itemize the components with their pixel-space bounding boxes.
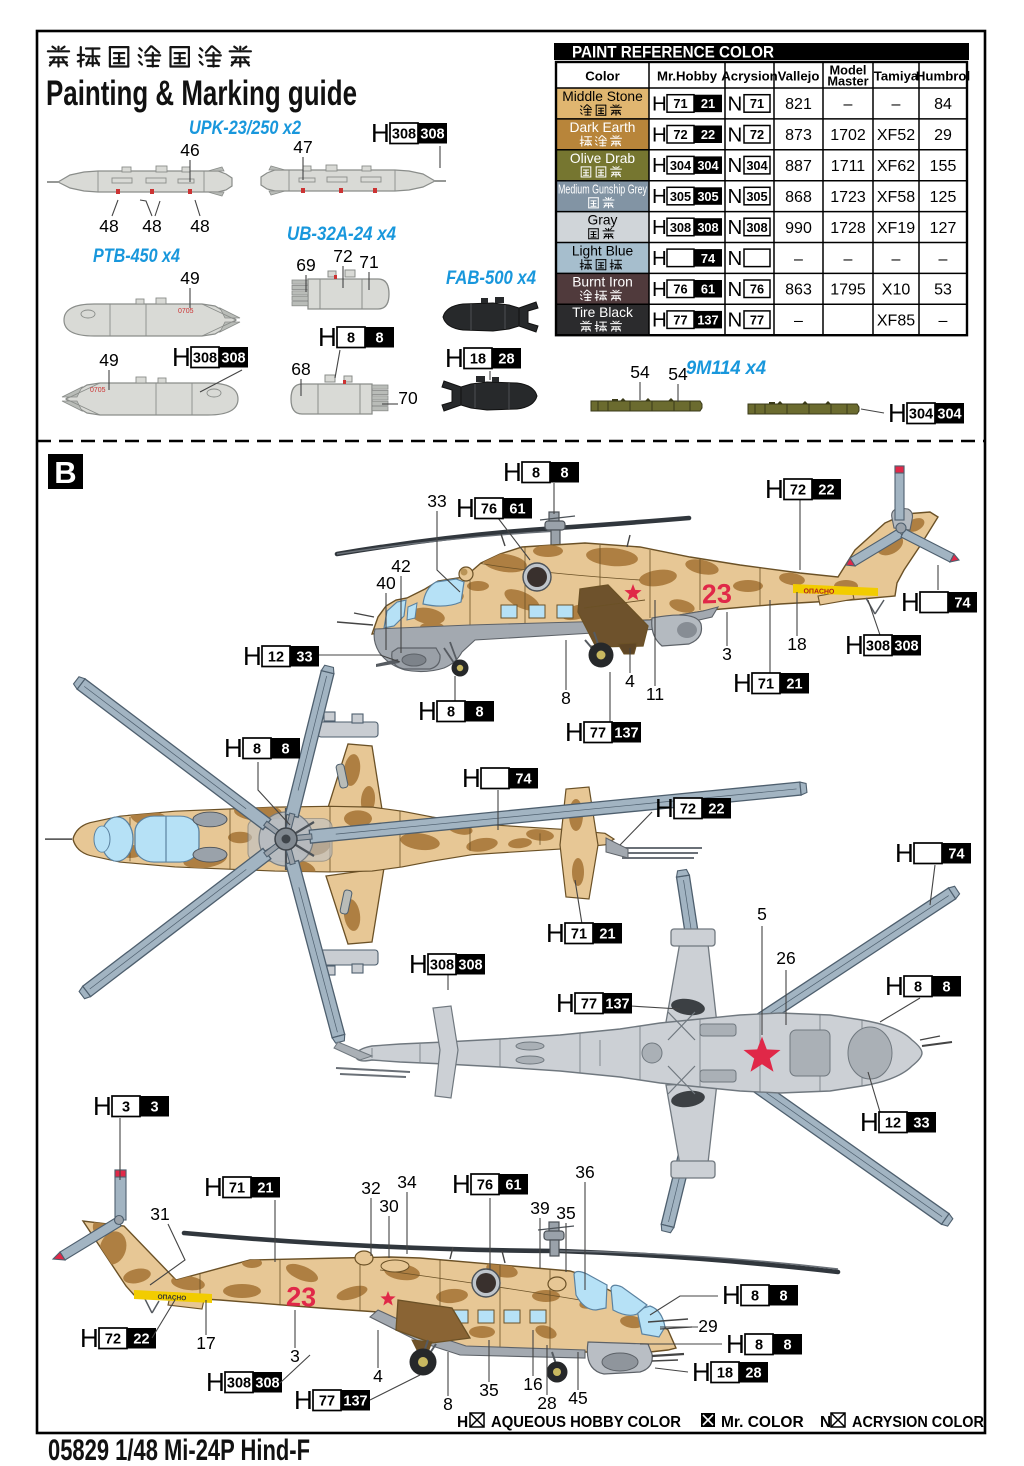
svg-text:308: 308 bbox=[866, 639, 890, 655]
svg-text:H: H bbox=[895, 838, 914, 868]
svg-text:8: 8 bbox=[375, 331, 383, 347]
svg-text:22: 22 bbox=[818, 483, 834, 499]
svg-text:71: 71 bbox=[673, 96, 687, 111]
svg-text:12: 12 bbox=[268, 650, 284, 666]
svg-text:8: 8 bbox=[443, 1394, 453, 1414]
svg-text:18: 18 bbox=[717, 1366, 733, 1382]
svg-text:868: 868 bbox=[785, 189, 812, 206]
svg-text:23: 23 bbox=[701, 578, 732, 609]
svg-text:8: 8 bbox=[253, 742, 261, 758]
svg-text:H: H bbox=[224, 733, 243, 763]
svg-text:22: 22 bbox=[701, 127, 715, 142]
svg-text:125: 125 bbox=[930, 189, 957, 206]
svg-text:305: 305 bbox=[697, 189, 718, 204]
svg-text:Mr.Hobby: Mr.Hobby bbox=[657, 69, 718, 84]
svg-text:H: H bbox=[172, 342, 191, 372]
svg-text:Mr. COLOR: Mr. COLOR bbox=[721, 1414, 804, 1431]
svg-text:1702: 1702 bbox=[830, 127, 866, 144]
svg-text:H: H bbox=[888, 398, 907, 428]
svg-text:71: 71 bbox=[229, 1181, 245, 1197]
svg-text:137: 137 bbox=[697, 313, 718, 328]
svg-text:H: H bbox=[462, 763, 481, 793]
svg-text:16: 16 bbox=[523, 1374, 542, 1394]
svg-text:48: 48 bbox=[142, 216, 161, 236]
svg-text:30: 30 bbox=[379, 1196, 399, 1216]
svg-text:–: – bbox=[939, 251, 948, 268]
svg-text:71: 71 bbox=[571, 927, 587, 943]
svg-text:53: 53 bbox=[934, 282, 952, 299]
svg-text:305: 305 bbox=[670, 189, 691, 204]
svg-text:N: N bbox=[728, 123, 743, 146]
svg-text:H: H bbox=[318, 322, 337, 352]
svg-text:UB-32A-24 x4: UB-32A-24 x4 bbox=[287, 224, 396, 245]
svg-text:28: 28 bbox=[537, 1393, 556, 1413]
svg-text:H: H bbox=[722, 1280, 741, 1310]
svg-text:22: 22 bbox=[708, 802, 724, 818]
svg-text:H: H bbox=[503, 457, 522, 487]
svg-text:9M114 x4: 9M114 x4 bbox=[686, 358, 766, 379]
svg-text:0705: 0705 bbox=[178, 308, 194, 315]
svg-text:74: 74 bbox=[954, 596, 970, 612]
svg-text:Acrysion: Acrysion bbox=[721, 69, 777, 84]
svg-text:36: 36 bbox=[575, 1162, 594, 1182]
svg-text:304: 304 bbox=[746, 158, 768, 173]
svg-text:4: 4 bbox=[373, 1366, 383, 1386]
svg-text:N: N bbox=[728, 278, 743, 301]
svg-text:308: 308 bbox=[430, 958, 454, 974]
svg-text:H: H bbox=[409, 949, 428, 979]
svg-text:887: 887 bbox=[785, 158, 812, 175]
svg-text:3: 3 bbox=[150, 1100, 158, 1116]
svg-text:61: 61 bbox=[701, 282, 715, 297]
svg-text:17: 17 bbox=[196, 1333, 215, 1353]
svg-text:H: H bbox=[901, 587, 920, 617]
svg-text:XF85: XF85 bbox=[877, 313, 915, 330]
svg-text:Color: Color bbox=[585, 69, 619, 84]
svg-text:8: 8 bbox=[281, 742, 289, 758]
svg-text:H: H bbox=[371, 118, 390, 148]
svg-text:8: 8 bbox=[779, 1289, 787, 1305]
svg-text:8: 8 bbox=[475, 705, 483, 721]
svg-text:72: 72 bbox=[333, 246, 352, 266]
svg-text:–: – bbox=[794, 251, 803, 268]
svg-text:18: 18 bbox=[787, 634, 806, 654]
svg-text:05829 1/48 Mi-24P Hind-F: 05829 1/48 Mi-24P Hind-F bbox=[48, 1434, 310, 1466]
svg-text:72: 72 bbox=[673, 127, 687, 142]
svg-text:77: 77 bbox=[590, 726, 606, 742]
svg-text:–: – bbox=[844, 251, 853, 268]
svg-text:308: 308 bbox=[255, 1376, 279, 1392]
svg-text:23: 23 bbox=[286, 1281, 317, 1312]
svg-text:21: 21 bbox=[257, 1181, 273, 1197]
svg-text:UPK-23/250 x2: UPK-23/250 x2 bbox=[189, 118, 301, 139]
svg-text:ОПАСНО: ОПАСНО bbox=[157, 1294, 186, 1302]
svg-text:76: 76 bbox=[477, 1178, 493, 1194]
svg-text:Burnt Iron: Burnt Iron bbox=[572, 274, 633, 289]
svg-text:H: H bbox=[556, 988, 575, 1018]
svg-text:Vallejo: Vallejo bbox=[778, 69, 820, 84]
svg-text:308: 308 bbox=[227, 1376, 251, 1392]
svg-text:N: N bbox=[728, 93, 743, 116]
svg-text:61: 61 bbox=[505, 1178, 521, 1194]
svg-text:71: 71 bbox=[750, 96, 764, 111]
svg-text:308: 308 bbox=[894, 639, 918, 655]
svg-text:11: 11 bbox=[646, 684, 664, 704]
svg-text:31: 31 bbox=[150, 1204, 169, 1224]
svg-text:Tamiya: Tamiya bbox=[874, 69, 919, 84]
svg-text:XF52: XF52 bbox=[877, 127, 915, 144]
svg-text:B: B bbox=[54, 455, 76, 490]
svg-text:3: 3 bbox=[290, 1346, 300, 1366]
svg-text:H: H bbox=[885, 971, 904, 1001]
svg-text:74: 74 bbox=[701, 251, 716, 266]
svg-text:ACRYSION COLOR: ACRYSION COLOR bbox=[852, 1414, 984, 1431]
svg-text:H: H bbox=[452, 1169, 471, 1199]
svg-text:H: H bbox=[652, 247, 667, 270]
svg-text:33: 33 bbox=[427, 491, 446, 511]
svg-text:77: 77 bbox=[581, 997, 597, 1013]
svg-text:–: – bbox=[794, 313, 803, 330]
svg-text:863: 863 bbox=[785, 282, 812, 299]
svg-text:47: 47 bbox=[293, 137, 312, 157]
svg-text:N: N bbox=[728, 154, 743, 177]
svg-text:H: H bbox=[93, 1091, 112, 1121]
svg-text:H: H bbox=[457, 1414, 468, 1431]
svg-text:1723: 1723 bbox=[830, 189, 866, 206]
svg-text:Painting & Marking guide: Painting & Marking guide bbox=[46, 74, 357, 113]
svg-text:12: 12 bbox=[885, 1116, 901, 1132]
svg-text:48: 48 bbox=[190, 216, 209, 236]
svg-text:35: 35 bbox=[479, 1380, 498, 1400]
svg-text:N: N bbox=[728, 309, 743, 332]
svg-text:H: H bbox=[845, 630, 864, 660]
svg-text:5: 5 bbox=[757, 904, 767, 924]
svg-text:–: – bbox=[892, 251, 901, 268]
svg-text:H: H bbox=[80, 1323, 99, 1353]
svg-text:X10: X10 bbox=[882, 282, 911, 299]
svg-text:N: N bbox=[820, 1414, 831, 1431]
svg-text:8: 8 bbox=[532, 466, 540, 482]
svg-text:77: 77 bbox=[319, 1394, 335, 1410]
svg-text:H: H bbox=[726, 1329, 745, 1359]
svg-text:H: H bbox=[206, 1367, 225, 1397]
svg-text:990: 990 bbox=[785, 220, 812, 237]
svg-text:H: H bbox=[652, 154, 667, 177]
svg-text:H: H bbox=[204, 1172, 223, 1202]
svg-text:308: 308 bbox=[193, 351, 217, 367]
svg-text:Middle Stone: Middle Stone bbox=[562, 89, 643, 104]
svg-text:H: H bbox=[765, 474, 784, 504]
svg-text:H: H bbox=[294, 1385, 313, 1415]
svg-text:N: N bbox=[728, 247, 743, 270]
svg-text:N: N bbox=[728, 216, 743, 239]
svg-text:308: 308 bbox=[392, 127, 416, 143]
svg-text:8: 8 bbox=[447, 705, 455, 721]
svg-text:308: 308 bbox=[670, 220, 691, 235]
svg-text:304: 304 bbox=[670, 158, 692, 173]
svg-text:1728: 1728 bbox=[830, 220, 866, 237]
svg-text:Gray: Gray bbox=[588, 213, 618, 228]
svg-text:XF62: XF62 bbox=[877, 158, 915, 175]
svg-text:3: 3 bbox=[122, 1100, 130, 1116]
svg-text:68: 68 bbox=[291, 359, 310, 379]
svg-text:49: 49 bbox=[99, 350, 118, 370]
svg-text:127: 127 bbox=[930, 220, 957, 237]
svg-text:8: 8 bbox=[755, 1338, 763, 1354]
svg-text:PTB-450 x4: PTB-450 x4 bbox=[93, 246, 180, 267]
svg-text:21: 21 bbox=[599, 927, 615, 943]
svg-text:32: 32 bbox=[361, 1178, 380, 1198]
svg-text:1711: 1711 bbox=[831, 158, 866, 175]
svg-text:22: 22 bbox=[133, 1332, 149, 1348]
svg-text:77: 77 bbox=[673, 313, 687, 328]
svg-text:33: 33 bbox=[913, 1116, 929, 1132]
svg-text:308: 308 bbox=[746, 220, 767, 235]
svg-text:74: 74 bbox=[948, 847, 964, 863]
svg-text:PAINT REFERENCE COLOR: PAINT REFERENCE COLOR bbox=[572, 43, 774, 62]
svg-text:304: 304 bbox=[909, 407, 933, 423]
svg-text:48: 48 bbox=[99, 216, 118, 236]
svg-text:H: H bbox=[652, 123, 667, 146]
svg-text:H: H bbox=[733, 668, 752, 698]
svg-text:77: 77 bbox=[750, 313, 764, 328]
svg-text:308: 308 bbox=[420, 127, 444, 143]
svg-text:69: 69 bbox=[296, 255, 315, 275]
svg-text:61: 61 bbox=[509, 502, 525, 518]
svg-text:18: 18 bbox=[470, 352, 486, 368]
svg-text:39: 39 bbox=[530, 1198, 549, 1218]
svg-text:308: 308 bbox=[697, 220, 718, 235]
svg-text:46: 46 bbox=[180, 140, 199, 160]
svg-text:70: 70 bbox=[398, 388, 418, 408]
svg-text:8: 8 bbox=[942, 980, 950, 996]
svg-text:4: 4 bbox=[625, 671, 635, 691]
svg-text:H: H bbox=[652, 93, 667, 116]
svg-text:29: 29 bbox=[698, 1316, 717, 1336]
svg-text:Light Blue: Light Blue bbox=[572, 243, 634, 258]
svg-text:71: 71 bbox=[758, 677, 774, 693]
svg-text:8: 8 bbox=[560, 466, 568, 482]
svg-text:35: 35 bbox=[556, 1203, 575, 1223]
svg-text:–: – bbox=[939, 313, 948, 330]
svg-text:8: 8 bbox=[783, 1338, 791, 1354]
svg-text:72: 72 bbox=[105, 1332, 121, 1348]
svg-text:34: 34 bbox=[397, 1172, 417, 1192]
svg-text:26: 26 bbox=[776, 948, 795, 968]
svg-text:H: H bbox=[445, 343, 464, 373]
svg-text:8: 8 bbox=[347, 331, 355, 347]
svg-text:72: 72 bbox=[680, 802, 696, 818]
svg-text:8: 8 bbox=[751, 1289, 759, 1305]
svg-text:33: 33 bbox=[296, 650, 312, 666]
svg-text:45: 45 bbox=[568, 1388, 587, 1408]
svg-text:54: 54 bbox=[630, 362, 650, 382]
svg-text:308: 308 bbox=[458, 958, 482, 974]
svg-text:72: 72 bbox=[750, 127, 764, 142]
svg-text:821: 821 bbox=[785, 96, 812, 113]
svg-text:28: 28 bbox=[745, 1366, 761, 1382]
svg-text:3: 3 bbox=[722, 644, 732, 664]
svg-text:H: H bbox=[652, 309, 667, 332]
svg-text:H: H bbox=[565, 717, 584, 747]
svg-text:H: H bbox=[860, 1107, 879, 1137]
svg-text:308: 308 bbox=[221, 351, 245, 367]
svg-text:72: 72 bbox=[790, 483, 806, 499]
svg-text:–: – bbox=[844, 96, 853, 113]
svg-text:Medium Gunship Grey: Medium Gunship Grey bbox=[558, 182, 647, 197]
svg-text:305: 305 bbox=[746, 189, 767, 204]
svg-text:21: 21 bbox=[701, 96, 715, 111]
svg-text:H: H bbox=[243, 641, 262, 671]
svg-text:76: 76 bbox=[750, 282, 764, 297]
svg-text:H: H bbox=[692, 1357, 711, 1387]
svg-text:H: H bbox=[456, 493, 475, 523]
svg-text:8: 8 bbox=[561, 688, 571, 708]
svg-text:FAB-500 x4: FAB-500 x4 bbox=[446, 268, 536, 289]
svg-text:71: 71 bbox=[359, 252, 378, 272]
svg-text:304: 304 bbox=[697, 158, 719, 173]
svg-text:–: – bbox=[892, 96, 901, 113]
svg-text:49: 49 bbox=[180, 268, 199, 288]
svg-text:H: H bbox=[655, 793, 674, 823]
svg-text:74: 74 bbox=[515, 772, 531, 788]
svg-text:84: 84 bbox=[934, 96, 952, 113]
svg-text:40: 40 bbox=[376, 573, 396, 593]
svg-text:76: 76 bbox=[481, 502, 497, 518]
svg-text:76: 76 bbox=[673, 282, 687, 297]
svg-text:155: 155 bbox=[930, 158, 957, 175]
svg-text:H: H bbox=[652, 185, 667, 208]
svg-text:H: H bbox=[652, 216, 667, 239]
svg-text:Dark Earth: Dark Earth bbox=[570, 120, 636, 135]
svg-text:XF19: XF19 bbox=[877, 220, 915, 237]
svg-text:304: 304 bbox=[937, 407, 961, 423]
svg-text:0705: 0705 bbox=[90, 387, 106, 394]
svg-text:54: 54 bbox=[668, 364, 688, 384]
svg-text:H: H bbox=[546, 918, 565, 948]
svg-text:Humbrol: Humbrol bbox=[916, 69, 970, 84]
svg-text:137: 137 bbox=[614, 726, 638, 742]
svg-text:ОПАСНО: ОПАСНО bbox=[803, 588, 835, 596]
svg-text:XF58: XF58 bbox=[877, 189, 915, 206]
svg-text:H: H bbox=[652, 278, 667, 301]
svg-text:8: 8 bbox=[914, 980, 922, 996]
svg-text:Tire Black: Tire Black bbox=[572, 305, 633, 320]
svg-text:873: 873 bbox=[785, 127, 812, 144]
svg-text:H: H bbox=[418, 696, 437, 726]
svg-text:1795: 1795 bbox=[830, 282, 866, 299]
svg-text:21: 21 bbox=[786, 677, 802, 693]
svg-text:N: N bbox=[728, 185, 743, 208]
svg-text:28: 28 bbox=[498, 352, 514, 368]
svg-text:AQUEOUS HOBBY COLOR: AQUEOUS HOBBY COLOR bbox=[491, 1414, 681, 1431]
svg-text:137: 137 bbox=[605, 997, 629, 1013]
svg-text:29: 29 bbox=[934, 127, 952, 144]
svg-text:Master: Master bbox=[827, 74, 868, 89]
svg-text:137: 137 bbox=[343, 1394, 367, 1410]
svg-text:Olive Drab: Olive Drab bbox=[570, 151, 635, 166]
